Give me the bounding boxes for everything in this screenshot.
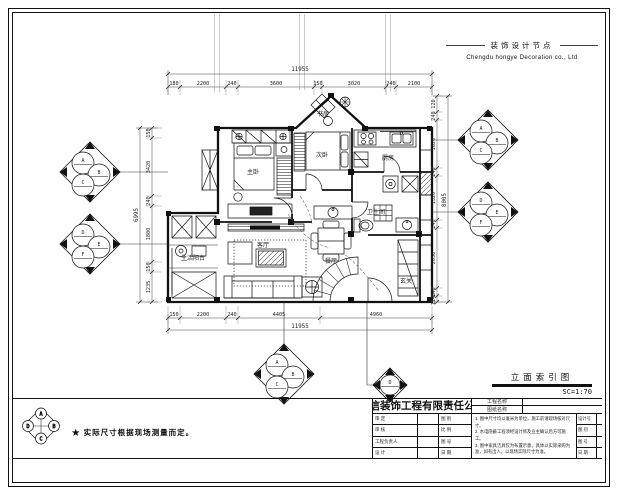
furniture-entry (398, 240, 418, 296)
marker-letter: F (81, 252, 84, 258)
dim-label: 1320 (431, 192, 437, 205)
marker-letter: B (97, 170, 100, 176)
dim-label: 1800 (146, 228, 152, 241)
marker-letter: C (275, 382, 278, 388)
legend-letter-right: B (52, 424, 55, 430)
note-line: 3. 图中家具洁具仅为布置示意，具体以实际采购为准，如有出入，以现场实际尺寸为准… (475, 443, 573, 456)
dim-label: 2200 (197, 312, 210, 318)
dim-label: 4405 (273, 312, 286, 318)
drawing-name-underline (492, 384, 592, 387)
drawing-name-label: 立面索引图 SC=1:70 (492, 371, 592, 396)
legend-elevation-marker: A B C D (23, 408, 60, 444)
dim-label: 120 (431, 99, 437, 108)
dim-label: 240 (227, 81, 236, 87)
dim-overall-bottom: 11955 (291, 324, 309, 330)
note-line: 1. 图中尺寸均以毫米为单位，施工前请现场核对尺寸。 (475, 416, 573, 429)
dim-label: 240 (431, 167, 437, 176)
dim-label: 2200 (197, 81, 210, 87)
room-label-bath: 卫生间 (367, 208, 385, 216)
sig-label2: 图 别 (439, 414, 471, 424)
marker-letter: A (479, 126, 482, 132)
furniture-bathroom (354, 176, 418, 232)
marker-letter: B (291, 372, 294, 378)
info-value (597, 425, 602, 435)
dim-label: 240 (386, 81, 395, 87)
sig-value (418, 437, 439, 447)
legend-letter-top: A (39, 412, 42, 418)
room-label-kitchen: 厨房 (382, 154, 394, 162)
band-line-bottom (12, 458, 602, 459)
dim-label: 1235 (146, 281, 152, 294)
dim-label: 2100 (408, 81, 421, 87)
dim-label: 150 (146, 262, 152, 271)
sig-label: 审 核 (373, 425, 418, 435)
marker-letter: C (81, 180, 84, 186)
marker-letter: F (479, 220, 482, 226)
marker-letter: D (81, 230, 84, 236)
dim-label: 150 (313, 81, 322, 87)
sheet-header: 装饰设计节点 Chengdu hongye Decoration co., Lt… (440, 40, 604, 61)
sig-label2: 日 期 (439, 448, 471, 458)
sheet-name-value (523, 406, 602, 413)
generated-annotations: 1802200240360015030202402100119551502200… (60, 67, 518, 404)
dim-label: 240 (146, 196, 152, 205)
title-block: 鸿信装饰工程有限责任公司 工程名称 图纸名称 审 定图 别 审 核比 例 工程负… (372, 398, 602, 458)
info-value (597, 448, 602, 458)
sheet-name-label: 图纸名称 (472, 406, 523, 413)
dim-label: 150 (169, 312, 178, 318)
marker-letter: A (275, 360, 278, 366)
dim-label: 4960 (370, 312, 383, 318)
sig-label2: 图 号 (439, 437, 471, 447)
header-title-cn: 装饰设计节点 (491, 40, 554, 51)
dim-label: 3020 (348, 81, 361, 87)
marker-letter: A (81, 158, 84, 164)
sig-label2: 比 例 (439, 425, 471, 435)
info-label: 图 号 (577, 437, 597, 447)
sheet-info-table: 设计号 图 别 图 号 日 期 (577, 414, 602, 458)
drawing-sheet: 1802200240360015030202402100119551502200… (0, 0, 618, 495)
marker-letter: D (479, 198, 482, 204)
sig-label: 设 计 (373, 448, 418, 458)
room-label-master: 主卧 (247, 168, 259, 176)
marker-letter: E (97, 242, 100, 248)
room-label-living: 客厅 (257, 241, 269, 249)
dim-overall-top: 11955 (291, 67, 309, 73)
info-value (597, 437, 602, 447)
sig-value (418, 425, 439, 435)
header-rule-right (560, 45, 599, 46)
exterior-walls (168, 96, 432, 302)
dim-label: 240 (431, 111, 437, 120)
site-measure-note: ★ 实际尺寸根据现场测量而定。 (72, 427, 194, 438)
dim-label: 150 (146, 128, 152, 137)
dim-overall-right: 8005 (442, 193, 448, 207)
sig-label: 审 定 (373, 414, 418, 424)
legend-letter-bottom: C (39, 437, 42, 443)
info-label: 设计号 (577, 414, 597, 424)
marker-letter: E (495, 210, 498, 216)
dim-overall-left: 6995 (134, 208, 140, 222)
dim-label: 1140 (431, 293, 437, 306)
dim-label: 3600 (270, 81, 283, 87)
sig-value (418, 448, 439, 458)
header-company-en: Chengdu hongye Decoration co., Ltd (440, 55, 604, 61)
info-label: 图 别 (577, 425, 597, 435)
furniture-master-bedroom (228, 130, 292, 218)
company-name: 鸿信装饰工程有限责任公司 (373, 398, 472, 413)
dim-label: 180 (169, 81, 178, 87)
project-name-value (523, 398, 602, 405)
legend-letter-left: D (26, 424, 29, 430)
header-rule-left (446, 45, 485, 46)
grid-extension-lines (215, 14, 391, 92)
sig-value (418, 414, 439, 424)
room-label-study: 书房 (317, 110, 329, 118)
dim-label: 1620 (431, 138, 437, 151)
project-name-label: 工程名称 (472, 398, 523, 405)
marker-letter: D (388, 380, 391, 386)
info-label: 日 期 (577, 448, 597, 458)
drawing-name: 立面索引图 (492, 371, 592, 383)
dim-label: 3420 (146, 161, 152, 174)
info-value (597, 414, 602, 424)
furniture-dining (311, 206, 352, 261)
marker-letter: B (495, 138, 498, 144)
note-line: 2. 水电隐蔽工程须经设计师及业主确认后方可施工。 (475, 429, 573, 442)
drawing-scale: SC=1:70 (492, 388, 592, 396)
room-label-dining: 餐厅 (325, 257, 337, 265)
room-label-bedroom2: 次卧 (316, 151, 328, 159)
marker-letter: C (479, 148, 482, 154)
room-label-entry: 玄关 (400, 277, 412, 285)
dim-label: 240 (227, 312, 236, 318)
room-label-balcony: 生活阳台 (181, 254, 205, 262)
signature-table: 审 定图 别 审 核比 例 工程负责人图 号 设 计日 期 (373, 414, 472, 458)
sig-label: 工程负责人 (373, 437, 418, 447)
dim-label: 240 (431, 219, 437, 228)
furniture-living-room (224, 224, 322, 298)
dim-label: 2050 (431, 252, 437, 265)
general-notes: 1. 图中尺寸均以毫米为单位，施工前请现场核对尺寸。 2. 水电隐蔽工程须经设计… (472, 414, 577, 458)
